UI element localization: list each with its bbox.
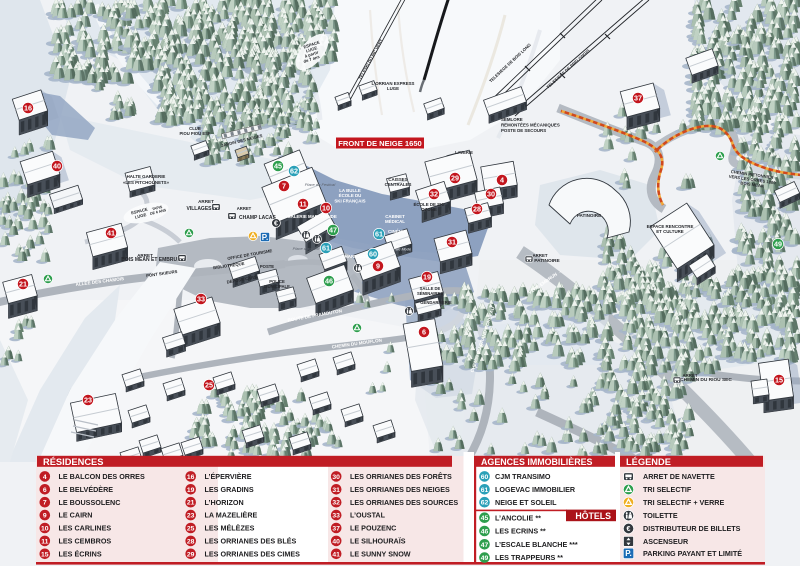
svg-text:LE BOUSSOLENC: LE BOUSSOLENC: [59, 498, 121, 507]
svg-text:Émile Mode: Émile Mode: [391, 247, 411, 252]
svg-text:LES ORRIANES DES CIMES: LES ORRIANES DES CIMES: [205, 549, 301, 558]
svg-text:21: 21: [19, 280, 27, 289]
svg-text:LES ÉCRINS: LES ÉCRINS: [59, 549, 102, 558]
svg-text:29: 29: [451, 174, 459, 183]
svg-text:7: 7: [43, 500, 47, 507]
svg-text:47: 47: [481, 542, 489, 549]
svg-text:25: 25: [187, 526, 195, 533]
svg-text:62: 62: [481, 500, 489, 507]
svg-text:ARRET DE NAVETTE: ARRET DE NAVETTE: [643, 472, 715, 481]
svg-text:€: €: [627, 526, 631, 533]
svg-text:LES CEMBROS: LES CEMBROS: [59, 537, 112, 546]
svg-text:LES ORRIANES DES NEIGES: LES ORRIANES DES NEIGES: [350, 485, 450, 494]
svg-text:PIOU PIOU ESF: PIOU PIOU ESF: [180, 131, 211, 136]
svg-text:61: 61: [322, 244, 330, 253]
svg-text:L’ESCALE BLANCHE ***: L’ESCALE BLANCHE ***: [495, 540, 578, 549]
svg-text:NEIGE ET SOLEIL: NEIGE ET SOLEIL: [495, 498, 557, 507]
svg-text:OZONE: OZONE: [421, 207, 437, 212]
svg-text:25: 25: [205, 381, 213, 390]
svg-text:L’ANCOLIE **: L’ANCOLIE **: [495, 513, 541, 522]
svg-text:ET CULTURE: ET CULTURE: [656, 229, 684, 234]
svg-text:61: 61: [375, 230, 383, 239]
svg-text:Place d’accueil: Place d’accueil: [293, 246, 320, 251]
svg-text:23: 23: [84, 396, 92, 405]
svg-text:REMONTÉES MÉCANIQUES: REMONTÉES MÉCANIQUES: [501, 122, 560, 127]
svg-text:62: 62: [290, 167, 298, 176]
svg-text:16: 16: [24, 104, 32, 113]
svg-text:LES MÉLÈZES: LES MÉLÈZES: [205, 524, 255, 533]
svg-text:45: 45: [274, 162, 282, 171]
svg-text:CINÉMA: CINÉMA: [388, 227, 407, 234]
svg-text:CJM TRANSIMO: CJM TRANSIMO: [495, 472, 551, 481]
svg-text:MÉDICAL: MÉDICAL: [385, 219, 405, 224]
svg-text:CHAMP LACAS: CHAMP LACAS: [239, 215, 277, 221]
svg-text:49: 49: [481, 555, 489, 562]
svg-text:LE POUZENC: LE POUZENC: [350, 524, 396, 533]
svg-text:6: 6: [422, 328, 426, 337]
svg-text:46: 46: [481, 529, 489, 536]
svg-text:€: €: [274, 221, 278, 228]
svg-text:19: 19: [423, 273, 431, 282]
svg-text:28: 28: [473, 205, 481, 214]
svg-text:60: 60: [369, 250, 377, 259]
svg-text:PHARMACIE: PHARMACIE: [342, 254, 369, 259]
svg-text:P.: P.: [625, 549, 632, 558]
svg-text:LUGE: LUGE: [387, 86, 399, 91]
svg-text:GENDARMERIE: GENDARMERIE: [420, 300, 452, 305]
svg-text:11: 11: [299, 200, 307, 209]
svg-text:LE SUNNY SNOW: LE SUNNY SNOW: [350, 549, 411, 558]
svg-text:37: 37: [332, 526, 340, 533]
svg-text:40: 40: [332, 538, 340, 545]
svg-text:4: 4: [43, 474, 47, 481]
svg-text:30: 30: [487, 190, 495, 199]
svg-text:POSTE: POSTE: [260, 264, 274, 269]
svg-text:L’OUSTAL: L’OUSTAL: [350, 511, 386, 520]
svg-text:33: 33: [197, 295, 205, 304]
svg-text:«LES PITCHOUNETS»: «LES PITCHOUNETS»: [123, 180, 170, 185]
svg-text:61: 61: [481, 487, 489, 494]
svg-text:POSTE DE SECOURS: POSTE DE SECOURS: [501, 128, 546, 133]
svg-text:RÉSIDENCES: RÉSIDENCES: [43, 457, 103, 467]
svg-text:LE BALCON DES ORRES: LE BALCON DES ORRES: [59, 472, 145, 481]
svg-text:23: 23: [187, 513, 195, 520]
svg-text:41: 41: [107, 229, 115, 238]
svg-text:10: 10: [322, 204, 330, 213]
svg-text:45: 45: [481, 515, 489, 522]
svg-text:29: 29: [187, 551, 195, 558]
svg-text:21: 21: [187, 500, 195, 507]
svg-text:33: 33: [332, 513, 340, 520]
svg-text:6: 6: [43, 487, 47, 494]
svg-text:40: 40: [53, 162, 61, 171]
svg-text:CHEMIN DU RIOU SEC: CHEMIN DU RIOU SEC: [680, 377, 732, 383]
svg-text:SKI FRANÇAIS: SKI FRANÇAIS: [334, 198, 365, 203]
svg-text:FRONT DE NEIGE 1650: FRONT DE NEIGE 1650: [338, 139, 422, 148]
svg-text:PARKING PAYANT ET LIMITÉ: PARKING PAYANT ET LIMITÉ: [643, 549, 742, 558]
svg-text:7: 7: [282, 182, 286, 191]
svg-text:ARRET: ARRET: [532, 253, 547, 258]
svg-text:LÉGENDE: LÉGENDE: [626, 457, 671, 467]
svg-text:16: 16: [187, 474, 195, 481]
svg-text:9: 9: [43, 513, 47, 520]
svg-text:32: 32: [332, 500, 340, 507]
svg-text:47: 47: [329, 226, 337, 235]
svg-text:LOGEVAC IMMOBILIER: LOGEVAC IMMOBILIER: [495, 485, 576, 494]
svg-text:LES ECRINS **: LES ECRINS **: [495, 527, 546, 536]
svg-text:LE CAIRN: LE CAIRN: [59, 511, 93, 520]
svg-text:SEMLORE: SEMLORE: [501, 117, 523, 122]
svg-text:15: 15: [41, 551, 49, 558]
svg-text:HÔTELS: HÔTELS: [575, 510, 611, 521]
svg-text:LES ORRIANES DES FORÊTS: LES ORRIANES DES FORÊTS: [350, 472, 452, 481]
svg-text:31: 31: [332, 487, 340, 494]
svg-text:DISTRIBUTEUR DE BILLETS: DISTRIBUTEUR DE BILLETS: [643, 524, 741, 533]
svg-text:LES CARLINES: LES CARLINES: [59, 524, 112, 533]
svg-text:ASCENSEUR: ASCENSEUR: [643, 537, 689, 546]
svg-text:15: 15: [775, 376, 783, 385]
svg-text:ARRET: ARRET: [198, 199, 214, 204]
svg-text:37: 37: [634, 94, 642, 103]
svg-text:LA MAZELIÈRE: LA MAZELIÈRE: [205, 511, 258, 520]
svg-text:MUNICIPALE: MUNICIPALE: [264, 284, 290, 289]
svg-text:SÉMINAIRES: SÉMINAIRES: [417, 291, 443, 296]
svg-text:BOIS MEAN ET EMBRUN: BOIS MEAN ET EMBRUN: [121, 257, 181, 263]
svg-text:10: 10: [41, 526, 49, 533]
svg-text:TRI SELECTIF: TRI SELECTIF: [643, 485, 692, 494]
svg-text:L’ÉPERVIÈRE: L’ÉPERVIÈRE: [205, 472, 252, 481]
svg-text:32: 32: [430, 190, 438, 199]
svg-text:TRI SELECTIF + VERRE: TRI SELECTIF + VERRE: [643, 498, 724, 507]
svg-text:41: 41: [332, 551, 340, 558]
svg-text:ARRET: ARRET: [237, 206, 252, 211]
svg-text:LAVERIE: LAVERIE: [455, 150, 473, 155]
svg-text:60: 60: [481, 474, 489, 481]
svg-text:30: 30: [332, 474, 340, 481]
svg-text:9: 9: [376, 262, 380, 271]
svg-text:4: 4: [500, 176, 504, 185]
svg-text:CENTRALES: CENTRALES: [385, 182, 412, 187]
svg-text:19: 19: [187, 487, 195, 494]
svg-text:PATINOIRE: PATINOIRE: [534, 258, 560, 264]
svg-text:VILLAGES: VILLAGES: [186, 206, 212, 212]
svg-text:HALTE GARDERIE: HALTE GARDERIE: [127, 174, 166, 179]
svg-text:28: 28: [187, 538, 195, 545]
svg-text:PATINOIRE: PATINOIRE: [577, 213, 601, 218]
svg-text:P.: P.: [262, 233, 269, 242]
svg-text:Place: Place: [396, 243, 406, 247]
svg-text:49: 49: [774, 240, 782, 249]
svg-text:L’HORIZON: L’HORIZON: [205, 498, 244, 507]
svg-text:LE SILHOURAÏS: LE SILHOURAÏS: [350, 537, 406, 546]
svg-text:LES ORRIANES DES SOURCES: LES ORRIANES DES SOURCES: [350, 498, 458, 507]
svg-text:GALERIE MARCHANDE: GALERIE MARCHANDE: [287, 214, 337, 219]
svg-text:LE BELVÉDÈRE: LE BELVÉDÈRE: [59, 485, 114, 494]
svg-text:LES GRADINS: LES GRADINS: [205, 485, 254, 494]
svg-text:TOILETTE: TOILETTE: [643, 511, 678, 520]
svg-text:11: 11: [41, 538, 48, 545]
svg-text:LES ORRIANES DES BLÉS: LES ORRIANES DES BLÉS: [205, 537, 297, 546]
svg-text:31: 31: [448, 238, 456, 247]
svg-text:46: 46: [325, 277, 333, 286]
svg-text:AGENCES IMMOBILIÈRES: AGENCES IMMOBILIÈRES: [481, 457, 593, 467]
svg-text:LES TRAPPEURS **: LES TRAPPEURS **: [495, 553, 563, 562]
svg-text:Place du Festival: Place du Festival: [305, 182, 336, 187]
